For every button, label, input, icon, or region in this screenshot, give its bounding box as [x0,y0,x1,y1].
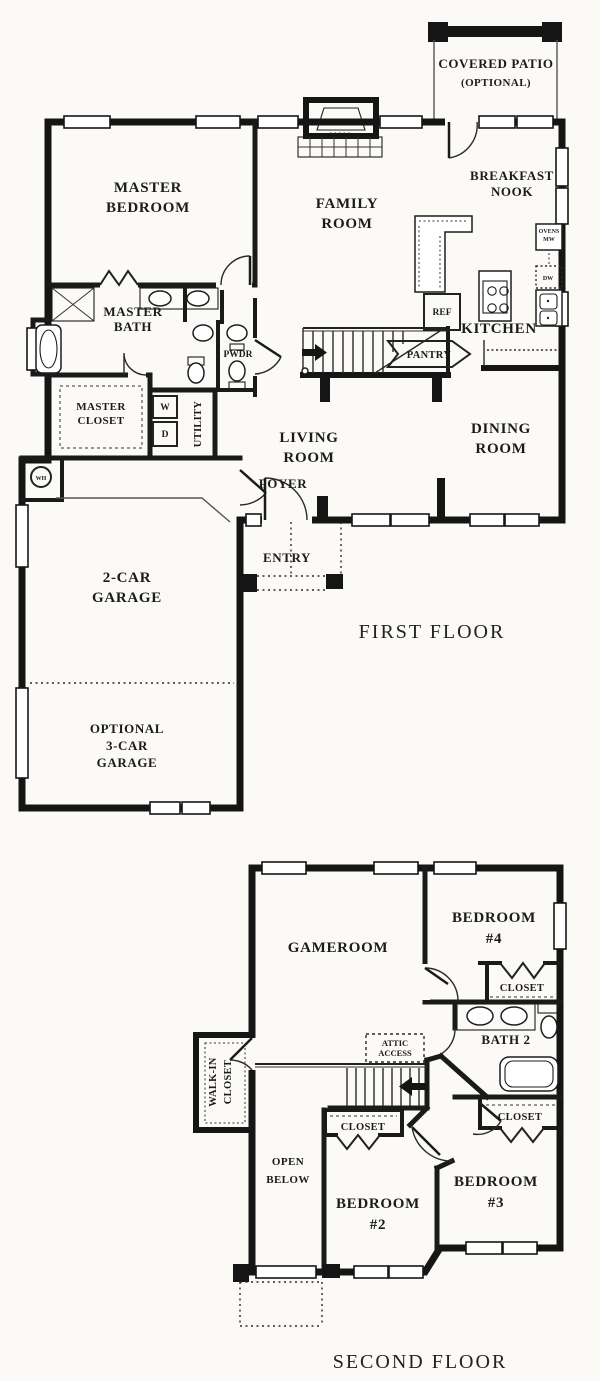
entry-label: ENTRY [263,550,311,565]
bedroom3-label-1: BEDROOM [454,1174,538,1190]
bedroom2-label-2: #2 [370,1217,386,1233]
first-floor-caption: FIRST FLOOR [359,621,506,643]
utility-label: UTILITY [193,401,204,448]
bath2-toilet [538,1004,557,1038]
master-bedroom-label-2: BEDROOM [106,200,190,216]
master-bath-label-2: BATH [114,319,152,334]
pwdr-sink [227,325,247,350]
living-room-label-2: ROOM [283,450,334,466]
wh-label: WH [36,476,47,482]
master-bedroom-label-1: MASTER [114,180,182,196]
attic-access-label-1: ATTIC [382,1038,408,1048]
garage3-label-1: OPTIONAL [90,721,164,736]
dining-room-label-2: ROOM [475,441,526,457]
kitchen-label: KITCHEN [461,321,537,337]
cooktop-island [479,271,511,321]
bedroom4-label-2: #4 [486,931,502,947]
pwdr-toilet [229,361,245,389]
bedroom3-label-2: #3 [488,1195,504,1211]
bedroom2-label-1: BEDROOM [336,1196,420,1212]
family-room-label-2: ROOM [321,216,372,232]
bath2-label: BATH 2 [481,1032,530,1047]
closet-b3-label: CLOSET [498,1112,542,1123]
kitchen-sink [536,290,562,326]
bath-toilet [188,357,204,383]
bathtub [36,325,61,373]
breakfast-nook-label-2: NOOK [491,184,533,199]
dining-room-label-1: DINING [471,421,531,437]
stairs-down [255,1064,427,1108]
ref-label: REF [433,308,452,318]
fireplace [298,100,382,157]
dw-label: DW [543,276,553,282]
attic-access-label-2: ACCESS [378,1048,412,1058]
closet-b4-bifold [500,963,545,978]
closet-b2-bifold [336,1135,380,1149]
mw-label: MW [543,237,555,243]
closet-b2-label: CLOSET [341,1122,385,1133]
bath2-tub [500,1057,558,1091]
foyer-label: FOYER [259,476,308,491]
pwdr-label: PWDR [223,350,252,360]
dryer-label: D [162,430,169,440]
first-floor-plan: COVERED PATIO (OPTIONAL) BREAKFAST NOOK … [16,22,568,814]
garage3-label-2: 3-CAR [106,738,148,753]
covered-patio-label: COVERED PATIO [438,56,553,71]
garage3-label-3: GARAGE [97,755,158,770]
floorplan-page: COVERED PATIO (OPTIONAL) BREAKFAST NOOK … [0,0,600,1381]
closet-b3-bifold [500,1128,544,1142]
foyer-wall-pier [317,496,328,521]
walkin-label-1: WALK-IN [208,1057,219,1106]
breakfast-nook-label-1: BREAKFAST [470,168,554,183]
gameroom-label: GAMEROOM [288,940,389,956]
garage2-label-1: 2-CAR [103,570,152,586]
master-bath-label-1: MASTER [103,304,162,319]
shower [52,288,94,321]
open-below-label-2: BELOW [266,1174,310,1186]
second-floor-caption: SECOND FLOOR [333,1351,508,1373]
bath2-vanity [457,1004,535,1030]
ovens-label: OVENS [539,229,560,235]
master-closet-label-1: MASTER [76,401,126,413]
floorplan-drawing: COVERED PATIO (OPTIONAL) BREAKFAST NOOK … [0,0,600,1381]
family-room-label-1: FAMILY [316,196,379,212]
garage2-label-2: GARAGE [92,590,162,606]
dining-wall-stub [437,478,445,520]
bath2-door-arc [441,1028,455,1054]
master-closet-label-2: CLOSET [77,415,124,427]
covered-patio [428,22,562,120]
open-below-label-1: OPEN [272,1156,304,1168]
pantry-label: PANTRY [407,350,452,361]
closet-b4-label: CLOSET [500,983,544,994]
second-floor-plan: GAMEROOM BEDROOM #4 CLOSET BATH 2 CLOSET… [196,862,566,1373]
bedroom4-label-1: BEDROOM [452,910,536,926]
living-room-label-1: LIVING [279,430,338,446]
closet-utility-walls [22,375,240,458]
covered-patio-sublabel: (OPTIONAL) [461,77,531,89]
garage-slab-edge [56,498,230,522]
walkin-label-2: CLOSET [223,1060,234,1104]
washer-label: W [160,403,170,413]
